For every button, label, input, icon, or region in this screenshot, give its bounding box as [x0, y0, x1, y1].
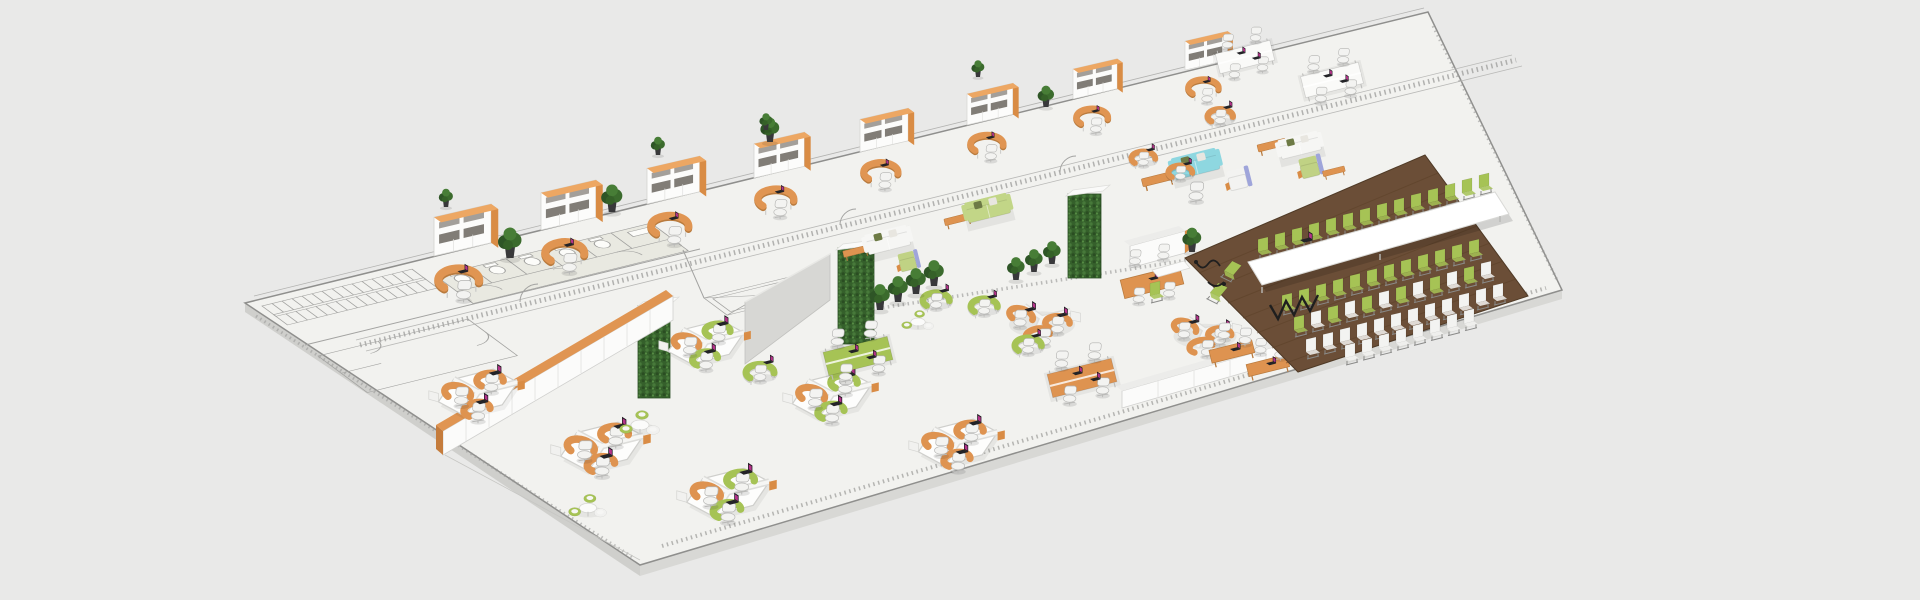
isometric-scene	[0, 0, 1920, 600]
office-floorplan-render	[0, 0, 1920, 600]
plant-on-cabinet	[971, 60, 984, 80]
plant-on-cabinet	[439, 189, 453, 210]
lounge-chair	[1188, 182, 1204, 205]
plant-on-cabinet	[651, 137, 665, 158]
